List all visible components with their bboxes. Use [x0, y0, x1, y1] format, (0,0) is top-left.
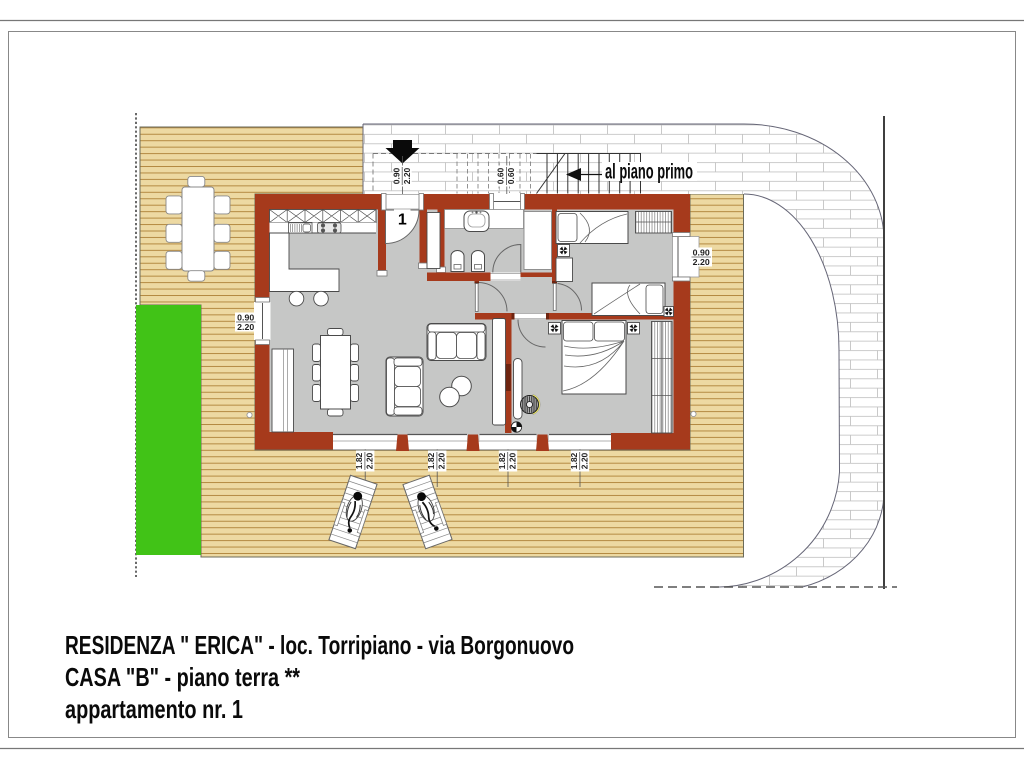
svg-text:0.90: 0.90 — [693, 249, 710, 258]
svg-text:appartamento nr. 1: appartamento nr. 1 — [65, 694, 243, 724]
svg-text:0.90: 0.90 — [392, 167, 401, 184]
svg-text:2.20: 2.20 — [366, 452, 375, 469]
svg-text:CASA "B" - piano terra **: CASA "B" - piano terra ** — [65, 662, 301, 692]
svg-text:1.82: 1.82 — [570, 452, 579, 469]
svg-text:1.82: 1.82 — [498, 452, 507, 469]
svg-text:2.20: 2.20 — [693, 258, 710, 267]
svg-text:2.20: 2.20 — [438, 452, 447, 469]
svg-text:0.60: 0.60 — [497, 167, 506, 184]
svg-text:1.82: 1.82 — [427, 452, 436, 469]
svg-text:0.60: 0.60 — [507, 167, 516, 184]
svg-text:RESIDENZA " ERICA" - loc. Torr: RESIDENZA " ERICA" - loc. Torripiano - v… — [65, 630, 574, 660]
svg-text:al piano primo: al piano primo — [605, 160, 693, 184]
svg-text:2.20: 2.20 — [403, 167, 412, 184]
svg-text:2.20: 2.20 — [508, 452, 517, 469]
svg-text:1.82: 1.82 — [355, 452, 364, 469]
svg-text:0.90: 0.90 — [237, 314, 254, 323]
svg-text:2.20: 2.20 — [580, 452, 589, 469]
svg-text:1: 1 — [398, 212, 407, 229]
svg-text:2.20: 2.20 — [237, 323, 254, 332]
